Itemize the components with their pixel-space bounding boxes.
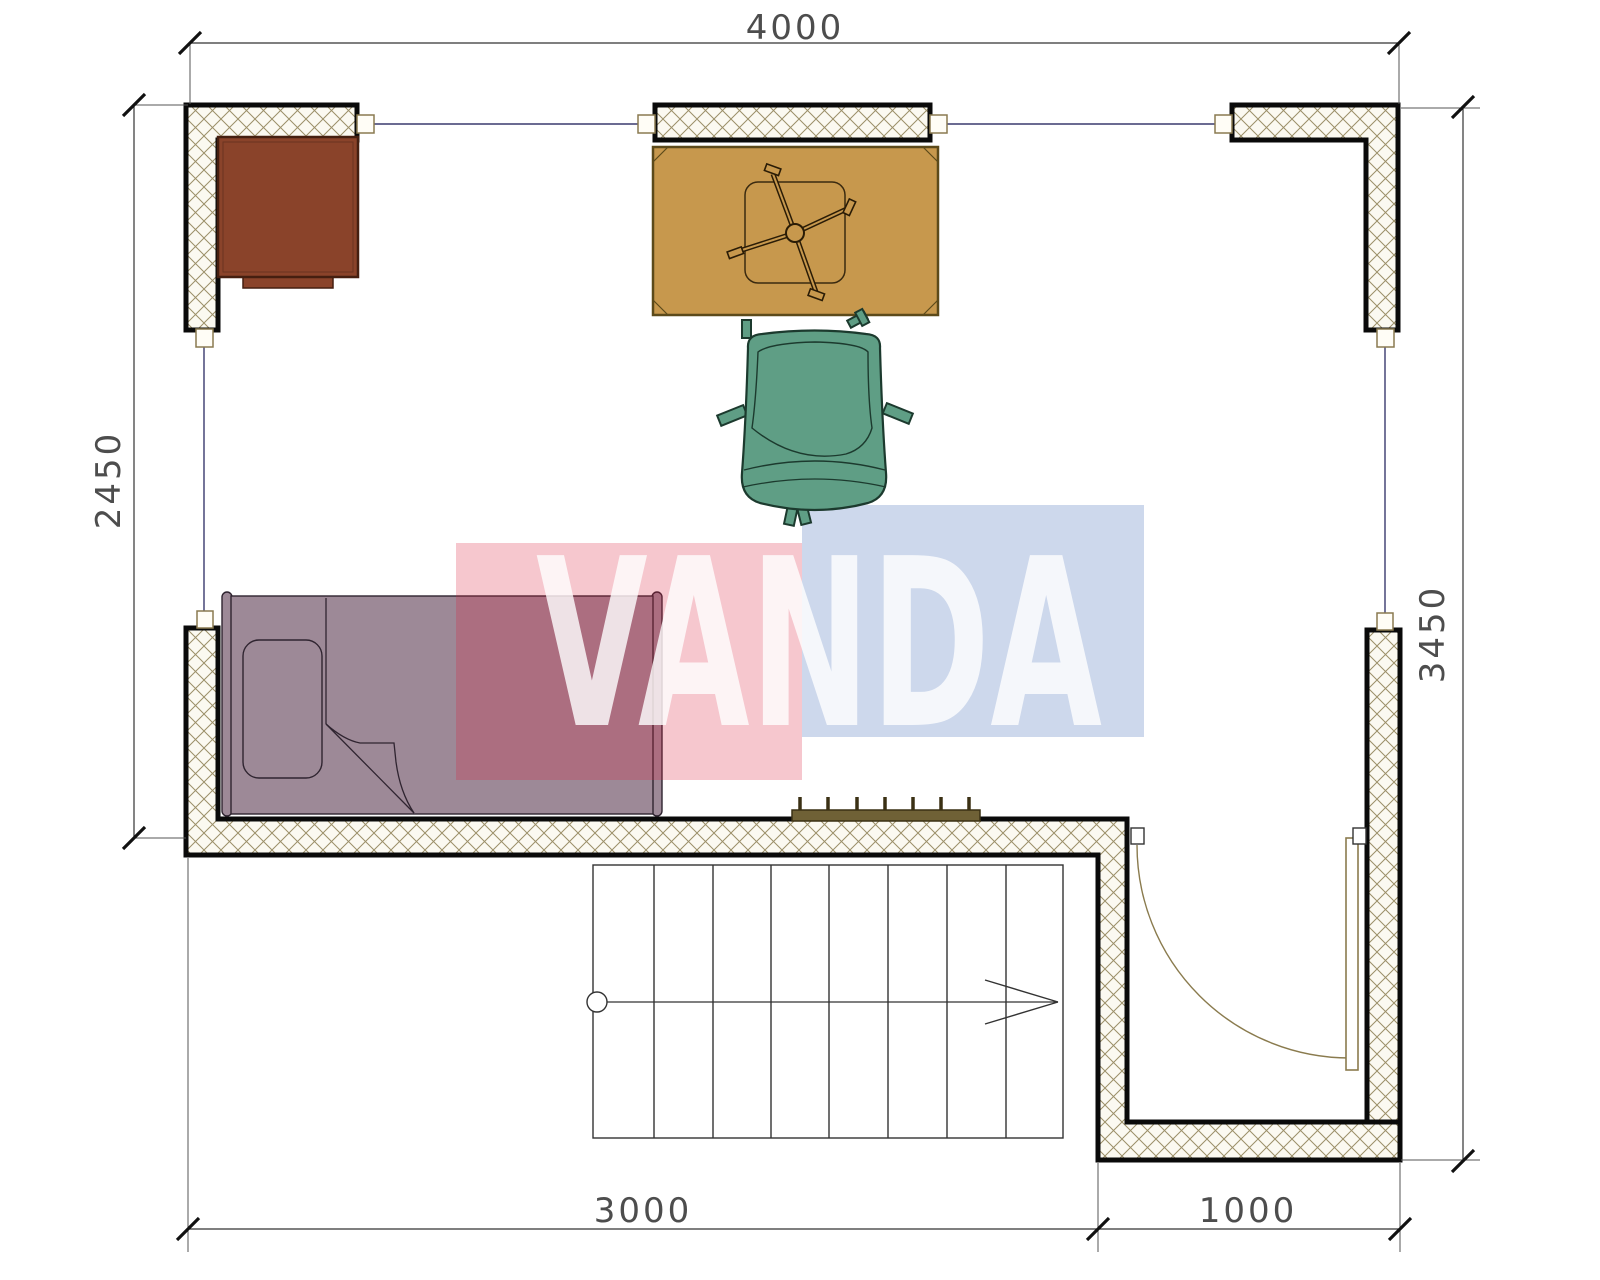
door <box>1131 828 1366 1070</box>
desk-top <box>218 137 358 277</box>
window-connector <box>930 115 947 133</box>
radiator <box>792 797 980 821</box>
watermark: VANDA <box>456 505 1144 780</box>
dim-text-bottom-right: 1000 <box>1199 1191 1298 1231</box>
radiator-body <box>792 810 980 821</box>
door-frame-block <box>1131 828 1144 844</box>
office-chair <box>717 309 913 526</box>
dim-text-left: 2450 <box>89 431 129 530</box>
door-leaf <box>1346 838 1358 1070</box>
watermark-text: VANDA <box>536 509 1102 780</box>
window-connector <box>197 611 213 628</box>
dim-text-bottom-left: 3000 <box>594 1191 693 1231</box>
wall-top-center <box>655 105 930 140</box>
door-swing-arc <box>1137 845 1350 1058</box>
stairs <box>587 865 1063 1138</box>
window-connector <box>1377 613 1393 630</box>
chair-armrest <box>717 405 747 426</box>
wall-right-lower <box>1367 630 1400 1122</box>
window-connector <box>1377 329 1394 347</box>
floor-plan-drawing: VANDA <box>0 0 1600 1280</box>
chair-caster <box>742 320 751 338</box>
window-connector <box>357 115 374 133</box>
stairs-start-circle <box>587 992 607 1012</box>
bed-pillow <box>243 640 322 778</box>
door-frame-block <box>1353 828 1366 844</box>
window-connector <box>1215 115 1232 133</box>
dim-text-right: 3450 <box>1413 585 1453 684</box>
wall-top-right-L <box>1232 105 1398 330</box>
chair-armrest <box>883 403 913 424</box>
window-connector <box>196 329 213 347</box>
window-connector <box>638 115 655 133</box>
floor-plan-canvas: VANDA <box>0 0 1600 1280</box>
dim-text-top: 4000 <box>746 8 845 48</box>
desk <box>218 137 358 288</box>
table <box>653 147 938 315</box>
